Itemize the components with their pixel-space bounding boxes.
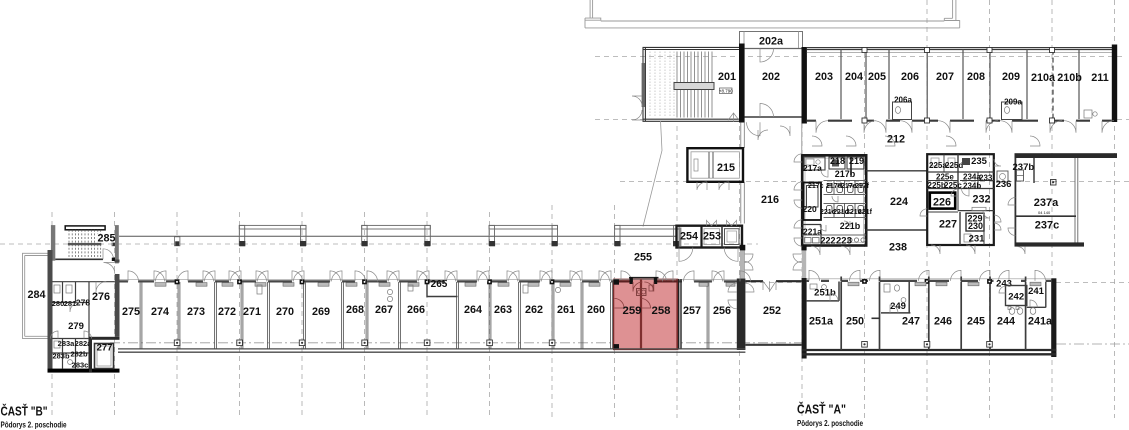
svg-text:264: 264 [464,304,482,316]
svg-text:253: 253 [703,231,721,243]
svg-text:275: 275 [122,306,140,318]
svg-text:270: 270 [276,306,294,318]
svg-text:246: 246 [934,316,952,328]
svg-text:226: 226 [933,197,951,209]
svg-text:225d: 225d [945,161,963,170]
svg-text:283b: 283b [52,352,70,361]
svg-text:202: 202 [762,71,780,83]
svg-text:220: 220 [803,204,817,214]
svg-text:271: 271 [243,306,261,318]
svg-text:285: 285 [97,233,115,245]
svg-text:206a: 206a [894,96,912,105]
svg-text:266: 266 [407,304,425,316]
svg-text:235: 235 [971,156,988,167]
svg-text:232: 232 [972,194,990,206]
svg-text:208: 208 [967,71,985,83]
svg-text:268: 268 [346,304,364,316]
svg-text:209a: 209a [1004,98,1022,107]
svg-text:255: 255 [634,252,652,264]
svg-text:241a: 241a [1028,316,1053,328]
svg-text:237a: 237a [1034,197,1059,209]
svg-text:236: 236 [996,179,1012,190]
svg-text:272: 272 [218,306,236,318]
svg-text:279: 279 [68,321,84,332]
svg-text:257: 257 [683,305,701,317]
svg-text:263: 263 [494,304,512,316]
svg-text:217d: 217d [826,183,842,190]
svg-text:244: 244 [997,316,1015,328]
svg-text:241: 241 [1028,286,1045,297]
svg-text:218: 218 [830,156,845,166]
svg-text:258: 258 [651,305,670,317]
svg-text:04 140: 04 140 [1038,210,1051,215]
svg-text:243: 243 [996,279,1012,290]
svg-text:274: 274 [151,306,169,318]
svg-text:260: 260 [587,304,605,316]
svg-text:256: 256 [713,305,731,317]
svg-text:223: 223 [836,236,852,247]
svg-text:237c: 237c [1035,220,1059,232]
svg-text:222: 222 [821,236,836,246]
svg-text:221f: 221f [858,209,873,216]
svg-text:231: 231 [969,234,986,245]
svg-text:215: 215 [717,162,735,174]
svg-text:259: 259 [622,305,641,317]
svg-text:217c: 217c [808,183,824,190]
svg-text:249: 249 [890,301,906,312]
svg-text:204: 204 [845,71,863,83]
svg-text:217a: 217a [803,163,822,173]
svg-text:212: 212 [887,134,905,146]
svg-text:252: 252 [763,305,781,317]
svg-text:251b: 251b [814,288,836,299]
svg-text:261: 261 [557,304,575,316]
svg-text:206: 206 [901,71,919,83]
svg-text:250: 250 [846,316,864,328]
svg-text:269: 269 [312,306,330,318]
svg-text:217f: 217f [855,183,870,190]
svg-text:+8.790: +8.790 [719,89,733,94]
svg-text:216: 216 [761,194,779,206]
svg-text:203: 203 [815,71,833,83]
svg-text:273: 273 [187,306,205,318]
svg-text:283c: 283c [72,361,89,370]
svg-text:242: 242 [1008,292,1024,303]
svg-text:Pôdorys 2. poschodie: Pôdorys 2. poschodie [1,420,67,430]
svg-text:262: 262 [525,304,543,316]
svg-text:207: 207 [936,71,954,83]
svg-text:267: 267 [375,304,393,316]
svg-text:217b: 217b [835,169,856,179]
svg-text:201: 201 [718,71,736,83]
svg-text:Pôdorys 2. poschodie: Pôdorys 2. poschodie [797,418,863,428]
svg-text:251a: 251a [809,316,834,328]
svg-text:280: 280 [52,299,65,308]
svg-text:282b: 282b [70,350,88,359]
svg-text:276: 276 [92,291,110,303]
svg-text:227: 227 [939,219,957,231]
svg-text:ČASŤ "A": ČASŤ "A" [797,402,846,417]
svg-text:230: 230 [968,221,983,231]
svg-text:234b: 234b [963,182,981,191]
svg-text:225c: 225c [944,181,962,190]
svg-text:202a: 202a [759,36,784,48]
svg-text:277: 277 [97,343,113,354]
svg-text:210a: 210a [1031,72,1056,84]
svg-text:245: 245 [967,316,985,328]
svg-text:247: 247 [902,316,920,328]
svg-text:210b: 210b [1057,72,1082,84]
svg-text:209: 209 [1002,71,1020,83]
svg-text:205: 205 [868,71,886,83]
svg-text:219: 219 [849,156,864,166]
svg-text:224: 224 [890,196,908,208]
svg-text:284: 284 [27,289,45,301]
svg-text:211: 211 [1091,72,1108,84]
svg-text:ČASŤ "B": ČASŤ "B" [1,404,48,419]
svg-text:238: 238 [889,242,907,254]
svg-text:254: 254 [680,231,698,243]
